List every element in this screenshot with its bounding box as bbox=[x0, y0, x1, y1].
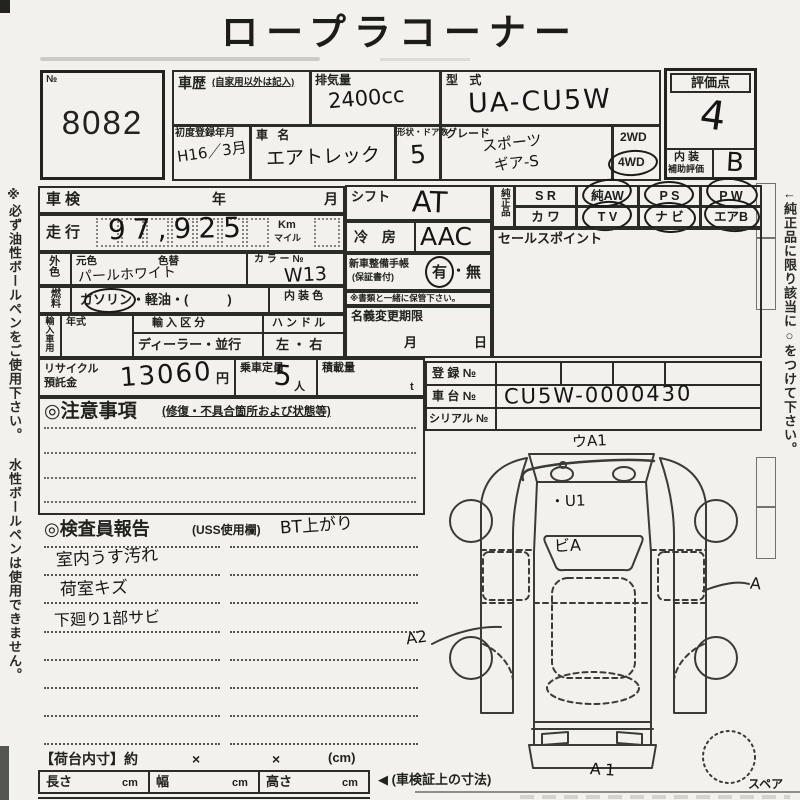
report-line bbox=[44, 743, 220, 745]
wheel-front-left bbox=[450, 500, 492, 542]
book-label-line2: (保証書付) bbox=[352, 272, 394, 282]
taillight-right bbox=[617, 732, 642, 745]
mark-windshield: ビA bbox=[554, 538, 581, 555]
cargo-dim-boxes bbox=[38, 770, 370, 794]
divider bbox=[268, 286, 270, 314]
bottom-faint-text bbox=[520, 795, 790, 799]
mileage-label: 走行 bbox=[46, 224, 84, 241]
panel-curve-left bbox=[483, 644, 513, 680]
digit-cell bbox=[246, 218, 269, 247]
body-side-right bbox=[646, 482, 651, 745]
attention-heading: ◎注意事項 bbox=[44, 401, 137, 423]
aircon-label: 冷 房 bbox=[354, 229, 401, 245]
report-line bbox=[44, 574, 220, 576]
left-side-note: ※必ず油性ボールペンをご使用下さい。 水性ボールペンは使用できません。 bbox=[6, 188, 21, 633]
book-label-line1: 新車整備手帳 bbox=[349, 259, 409, 271]
aircon-value: AAC bbox=[420, 224, 472, 249]
reg-divider bbox=[664, 361, 666, 384]
interior-grade: B bbox=[725, 150, 744, 177]
reg-no-label: 登 録 № bbox=[432, 367, 476, 381]
mileage-unit-km: Km bbox=[278, 219, 296, 232]
divider bbox=[262, 314, 264, 358]
history-label: 車歴 bbox=[178, 75, 206, 91]
drive-2wd-option: 2WD bbox=[620, 131, 647, 145]
handle-value: 左 ・ 右 bbox=[276, 338, 322, 353]
cargo-height-unit: cm bbox=[342, 777, 358, 790]
side-panel-left bbox=[481, 458, 527, 713]
inspector-note-bt: BT上がり bbox=[279, 515, 353, 537]
divider bbox=[70, 286, 72, 314]
recycle-unit: 円 bbox=[216, 372, 229, 387]
car-name-value: エアトレック bbox=[266, 146, 381, 169]
displacement-label: 排気量 bbox=[315, 74, 351, 88]
recycle-label-line1: リサイクル bbox=[44, 363, 98, 376]
report-line bbox=[230, 715, 418, 717]
wheel-front-right bbox=[695, 500, 737, 542]
mark-rear-bumper: A1 bbox=[589, 761, 619, 779]
mark-hood: ・U1 bbox=[550, 493, 586, 509]
chassis-no-label: 車 台 № bbox=[432, 390, 476, 404]
roof-outline bbox=[552, 578, 635, 678]
lot-number: 8082 bbox=[40, 104, 165, 142]
report-line bbox=[230, 743, 418, 745]
panel-curve-right bbox=[674, 644, 704, 680]
report-line bbox=[44, 631, 220, 633]
cargo-times-1: × bbox=[192, 751, 200, 767]
body-side-left bbox=[534, 482, 537, 745]
divider bbox=[70, 252, 72, 286]
bottom-cut-line bbox=[415, 791, 800, 793]
panel-window-left bbox=[483, 552, 529, 600]
interior-color-label: 内 装 色 bbox=[284, 290, 323, 303]
divider bbox=[132, 332, 262, 334]
recycle-value: 13060 bbox=[119, 359, 213, 391]
side-panel-right bbox=[660, 458, 706, 713]
title-smudge bbox=[40, 57, 320, 61]
capacity-unit: 人 bbox=[294, 381, 305, 394]
spare-tire-circle bbox=[703, 731, 755, 783]
divider bbox=[148, 770, 150, 794]
evaluation-divider-v bbox=[712, 148, 714, 178]
exterior-color-label: 外色 bbox=[47, 255, 60, 285]
cargo-width-unit: cm bbox=[232, 777, 248, 790]
cargo-length-unit: cm bbox=[122, 777, 138, 790]
auction-sheet: ロープラコーナー ※必ず油性ボールペンをご使用下さい。 水性ボールペンは使用でき… bbox=[0, 0, 800, 800]
report-line bbox=[44, 659, 220, 661]
handle-label: ハ ン ド ル bbox=[272, 317, 325, 330]
attention-line bbox=[44, 501, 416, 503]
cargo-length-label: 長さ bbox=[46, 775, 72, 790]
sales-point-box bbox=[492, 228, 762, 358]
divider bbox=[258, 770, 260, 794]
serial-no-label: シリアル № bbox=[429, 413, 488, 426]
genuine-label: 純正品 bbox=[498, 188, 509, 226]
divider bbox=[234, 358, 236, 397]
evaluation-label: 評価点 bbox=[670, 76, 751, 91]
name-change-day: 日 bbox=[474, 336, 487, 351]
page-title: ロープラコーナー bbox=[185, 12, 615, 55]
scan-edge-blob bbox=[0, 746, 9, 800]
book-note: ※書類と一緒に保管下さい。 bbox=[350, 294, 460, 304]
report-line bbox=[230, 631, 418, 633]
shift-value: AT bbox=[412, 187, 448, 217]
report-line bbox=[44, 602, 220, 604]
reg-divider bbox=[560, 361, 562, 384]
cut-box-line bbox=[38, 797, 370, 799]
inspector-subheading: (USS使用欄) bbox=[192, 524, 261, 538]
title-smudge-2 bbox=[380, 58, 470, 61]
first-registration-label: 初度登録年月 bbox=[175, 128, 235, 140]
panel-window-right bbox=[658, 552, 704, 600]
import-year-label: 年式 bbox=[66, 317, 86, 329]
name-change-label: 名義変更期限 bbox=[351, 310, 423, 324]
car-name-label: 車 名 bbox=[256, 129, 292, 143]
divider bbox=[414, 221, 416, 253]
circle-book-yes bbox=[425, 256, 454, 288]
mark-front-bumper: ウA1 bbox=[572, 433, 608, 450]
front-bumper bbox=[529, 454, 654, 482]
cargo-heading: 【荷台内寸】約 bbox=[40, 751, 138, 767]
mileage-unit-mile: マイル bbox=[274, 233, 301, 243]
load-label: 積載量 bbox=[322, 362, 355, 375]
report-line bbox=[230, 659, 418, 661]
mark-right-side: A bbox=[749, 576, 761, 593]
shift-label: シフト bbox=[351, 190, 390, 205]
model-code-value: UA-CU5W bbox=[468, 85, 613, 117]
mark-left-rear: A2 bbox=[405, 629, 428, 648]
import-label: 輸入車用 bbox=[44, 316, 54, 356]
report-line bbox=[230, 687, 418, 689]
reg-divider bbox=[612, 361, 614, 384]
inspector-note-2: 荷室キズ bbox=[60, 580, 129, 599]
report-line bbox=[230, 546, 418, 548]
shaken-label: 車検 bbox=[46, 191, 84, 208]
divider bbox=[495, 361, 497, 431]
headlight-right bbox=[613, 467, 635, 481]
report-line bbox=[230, 602, 418, 604]
report-line bbox=[44, 687, 220, 689]
report-line bbox=[44, 715, 220, 717]
import-class-value: ディーラー・並行 bbox=[138, 338, 241, 353]
report-line bbox=[230, 574, 418, 576]
divider bbox=[246, 252, 248, 286]
inspector-heading: ◎検査員報告 bbox=[44, 519, 150, 540]
base-color-label: 元色 bbox=[76, 255, 97, 267]
divider bbox=[132, 314, 134, 358]
car-diagram bbox=[425, 432, 795, 800]
cargo-times-2: × bbox=[272, 751, 280, 767]
taillight-left bbox=[542, 732, 568, 745]
inspector-note-3: 下廻り1部サビ bbox=[54, 609, 161, 629]
arrow-to-a2 bbox=[432, 627, 501, 644]
shaken-month-label: 月 bbox=[324, 191, 338, 207]
wheel-rear-left bbox=[450, 637, 492, 679]
headlight-left bbox=[551, 467, 573, 481]
cargo-height-label: 高さ bbox=[266, 775, 292, 790]
attention-line bbox=[44, 477, 416, 479]
wheel-rear-right bbox=[695, 637, 737, 679]
divider bbox=[316, 358, 318, 397]
cargo-unit: (cm) bbox=[328, 751, 355, 766]
lot-no-symbol: № bbox=[46, 74, 57, 86]
doors-value: 5 bbox=[409, 141, 427, 167]
attention-line bbox=[44, 452, 416, 454]
cargo-width-label: 幅 bbox=[156, 775, 169, 790]
capacity-value: 5 bbox=[273, 361, 293, 390]
genuine-cell-sr: S R bbox=[514, 185, 577, 207]
shaken-year-label: 年 bbox=[212, 191, 226, 207]
shaken-row bbox=[38, 186, 345, 214]
sales-point-label: セールスポイント bbox=[498, 232, 602, 247]
recycle-label-line2: 預託金 bbox=[44, 377, 77, 390]
row-line bbox=[425, 407, 762, 409]
import-class-label: 輸 入 区 分 bbox=[152, 317, 205, 330]
history-note: (自家用以外は記入) bbox=[212, 78, 294, 89]
mileage-value: 97,925 bbox=[108, 214, 248, 244]
interior-label-line1: 内 装 bbox=[674, 151, 699, 164]
divider bbox=[60, 314, 62, 358]
arrow-to-a bbox=[703, 583, 749, 591]
digit-cell bbox=[314, 218, 340, 247]
divider bbox=[262, 332, 345, 334]
model-code-label: 型 式 bbox=[446, 74, 485, 88]
load-unit: t bbox=[410, 381, 414, 394]
interior-label-line2: 補助評価 bbox=[668, 164, 704, 174]
inspector-note-1: 室内うす汚れ bbox=[56, 547, 159, 569]
attention-line bbox=[44, 427, 416, 429]
color-no-value: W13 bbox=[284, 265, 328, 286]
attention-subheading: (修復・不具合箇所および状態等) bbox=[162, 406, 331, 419]
genuine-cell-kawa: カ ワ bbox=[514, 206, 577, 228]
fuel-label: 燃料 bbox=[48, 288, 60, 314]
chassis-no-value: CU5W-0000430 bbox=[504, 383, 693, 407]
scan-corner-blob bbox=[0, 0, 10, 13]
name-change-month: 月 bbox=[404, 336, 417, 351]
book-no-option: 無 bbox=[466, 264, 481, 281]
spare-label: スペア bbox=[748, 778, 783, 792]
